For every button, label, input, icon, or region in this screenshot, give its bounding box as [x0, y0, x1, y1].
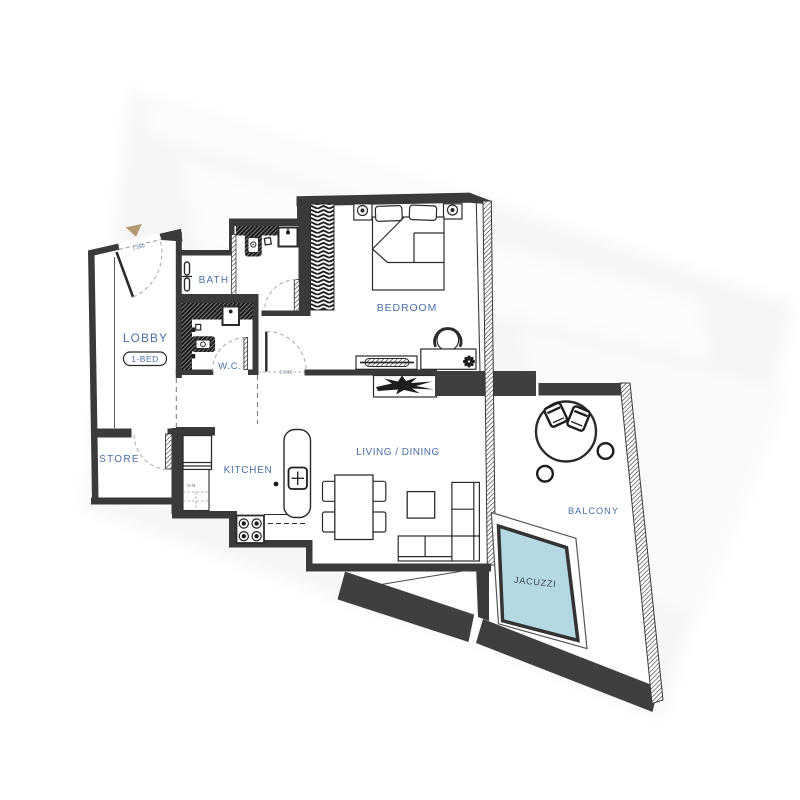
svg-text:1-BED: 1-BED [131, 354, 159, 364]
svg-text:BATH: BATH [199, 275, 230, 286]
svg-text:LOBBY: LOBBY [123, 331, 168, 345]
svg-text:BEDROOM: BEDROOM [377, 302, 438, 314]
svg-text:STORE: STORE [99, 454, 140, 465]
svg-text:W.C.: W.C. [218, 361, 242, 372]
svg-text:KITCHEN: KITCHEN [224, 465, 273, 476]
svg-text:BALCONY: BALCONY [568, 506, 619, 516]
svg-text:LIVING / DINING: LIVING / DINING [356, 447, 440, 458]
svg-text:0.940: 0.940 [280, 370, 293, 376]
svg-text:W.M: W.M [187, 483, 196, 488]
